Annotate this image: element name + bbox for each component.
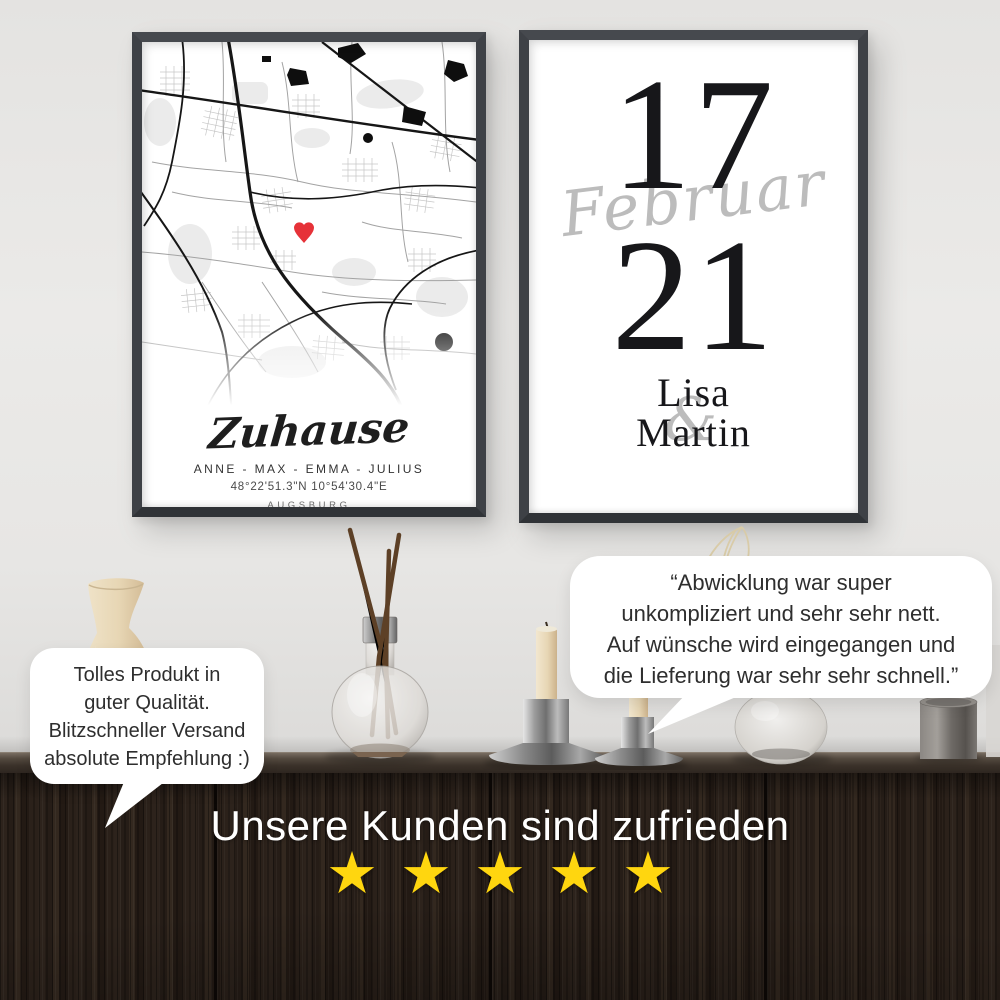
heart-marker-icon <box>294 222 314 243</box>
testimonial-line: die Lieferung war sehr sehr schnell.” <box>570 660 992 691</box>
date-poster: Februar 17 21 & Lisa Martin <box>529 40 858 513</box>
star-rating: ★★★★★ <box>0 845 1000 903</box>
star-icon: ★ <box>548 845 600 903</box>
map-poster: Zuhause ANNE - MAX - EMMA - JULIUS 48°22… <box>142 42 476 507</box>
city-map-graphic <box>142 42 476 422</box>
map-poster-names: ANNE - MAX - EMMA - JULIUS <box>142 463 476 475</box>
map-poster-frame: Zuhause ANNE - MAX - EMMA - JULIUS 48°22… <box>132 32 486 517</box>
couple-name-top: Lisa <box>529 373 858 413</box>
couple-name-bottom: Martin <box>529 413 858 453</box>
testimonial-line: guter Qualität. <box>30 689 264 717</box>
reed-diffuser-vase <box>332 530 428 758</box>
testimonial-bubble-right: “Abwicklung war super unkompliziert und … <box>570 556 992 698</box>
testimonial-line: Tolles Produkt in <box>30 661 264 689</box>
testimonial-line: absolute Empfehlung :) <box>30 745 264 773</box>
day-number: 17 <box>529 54 858 214</box>
testimonial-bubble-left: Tolles Produkt in guter Qualität. Blitzs… <box>30 648 264 784</box>
map-poster-coordinates: 48°22'51.3"N 10°54'30.4"E <box>142 482 476 494</box>
room-scene: Zuhause ANNE - MAX - EMMA - JULIUS 48°22… <box>0 0 1000 1000</box>
testimonial-line: Auf wünsche wird eingegangen und <box>570 629 992 660</box>
star-icon: ★ <box>474 845 526 903</box>
testimonial-line: “Abwicklung war super <box>570 567 992 598</box>
glass-sphere-vase <box>735 690 827 764</box>
date-poster-frame: Februar 17 21 & Lisa Martin <box>519 30 868 523</box>
star-icon: ★ <box>400 845 452 903</box>
star-icon: ★ <box>326 845 378 903</box>
year-number: 21 <box>529 215 858 375</box>
testimonial-line: unkompliziert und sehr sehr nett. <box>570 598 992 629</box>
testimonial-line: Blitzschneller Versand <box>30 717 264 745</box>
metal-cylinder-vase <box>920 697 977 760</box>
star-icon: ★ <box>622 845 674 903</box>
candlestick-right <box>595 692 683 766</box>
